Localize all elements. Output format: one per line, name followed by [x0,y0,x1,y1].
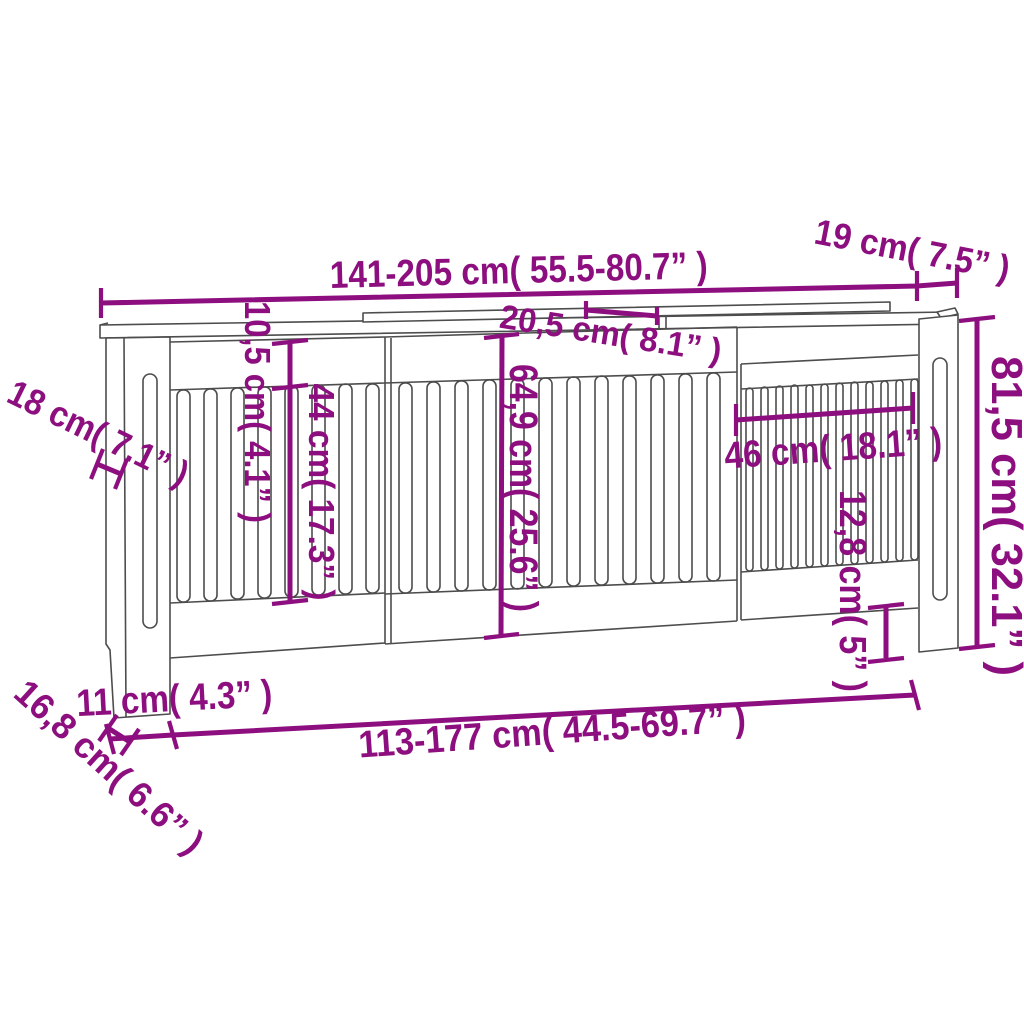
extension-slat-panel [741,355,918,620]
dim-label-top-rail-height: 10,5 cm( 4.1” ) [237,301,278,523]
left-leg [106,337,170,718]
right-leg [919,315,958,652]
dimension-diagram-page: 141-205 cm( 55.5-80.7” ) 19 cm( 7.5” ) 2… [0,0,1024,1024]
dim-label-left-slat-height: 44 cm( 17.3” ) [301,384,342,601]
dim-label-bottom-right-height: 12,8 cm( 5” ) [831,490,873,692]
dim-label-shelf-depth: 19 cm( 7.5” ) [811,211,1013,289]
dim-label-inner-width-range: 113-177 cm( 44.5-69.7” ) [357,698,747,767]
dim-label-leg-width: 11 cm( 4.3” ) [75,673,273,725]
radiator-cover-dimension-diagram: 141-205 cm( 55.5-80.7” ) 19 cm( 7.5” ) 2… [0,0,1024,1024]
dim-label-total-height: 81,5 cm( 32.1” ) [982,356,1024,676]
dim-line-extension-panel-width [736,408,913,420]
dim-label-inner-height: 64,9 cm( 25.6” ) [501,364,545,612]
middle-slat-panel [385,327,737,644]
middle-slats [399,373,720,593]
